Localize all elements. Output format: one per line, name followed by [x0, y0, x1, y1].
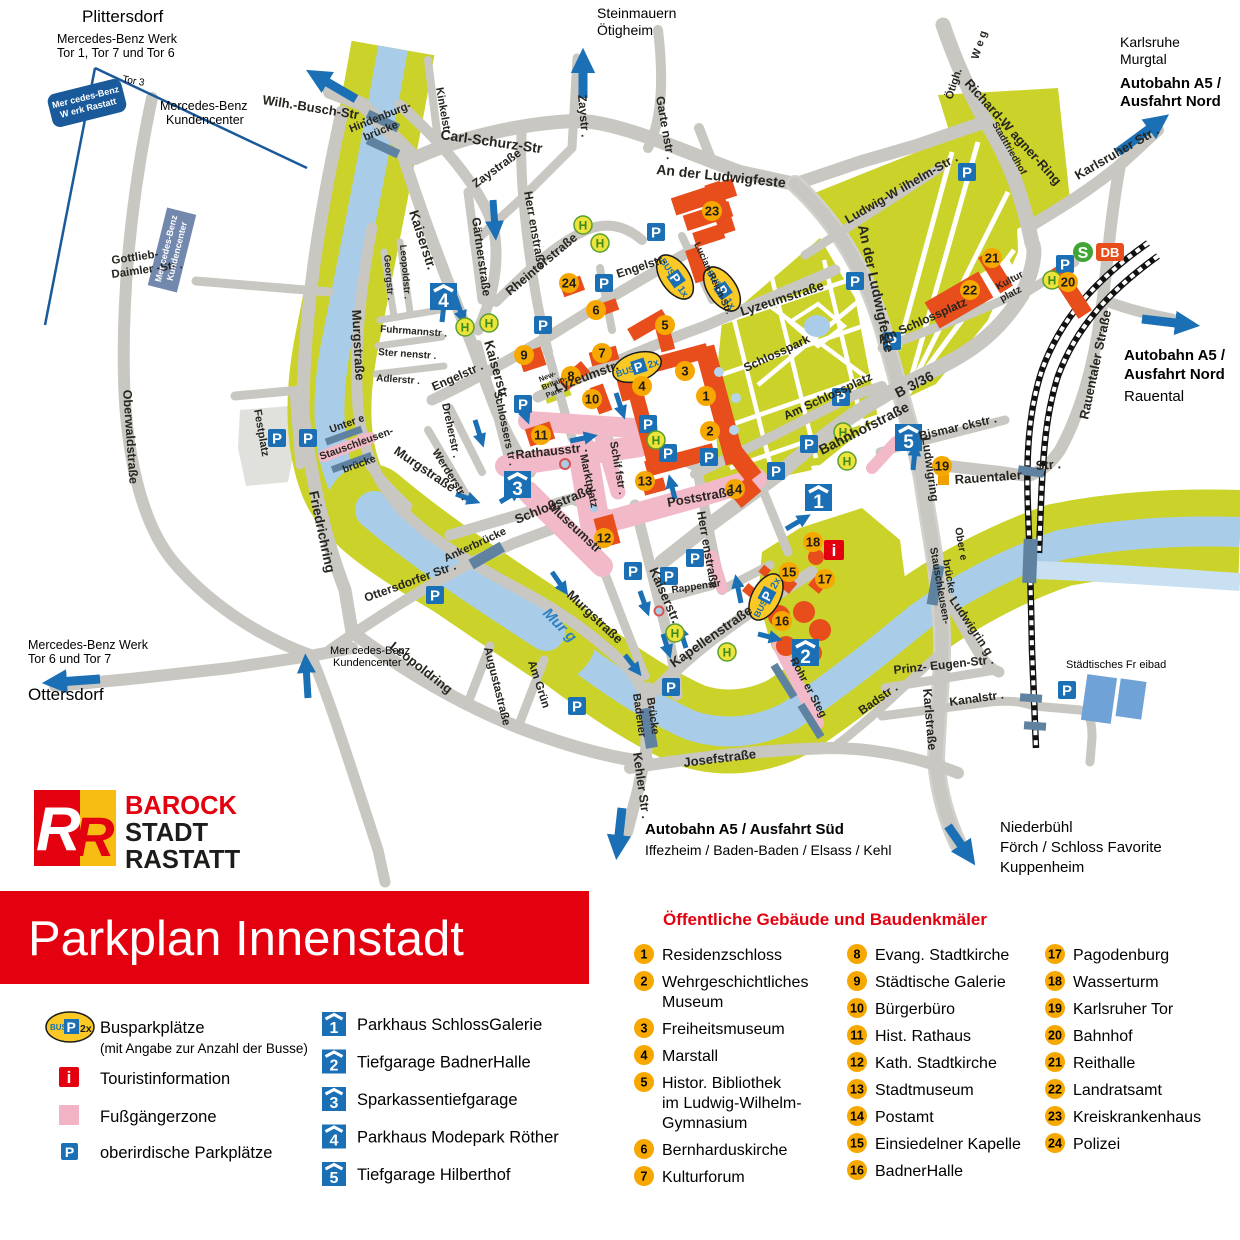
svg-text:Mercedes-Benz Werk: Mercedes-Benz Werk	[57, 32, 178, 46]
svg-text:P: P	[67, 1019, 76, 1035]
svg-text:3: 3	[330, 1095, 339, 1112]
svg-text:H: H	[596, 237, 605, 251]
svg-text:oberirdische Parkplätze: oberirdische Parkplätze	[100, 1144, 272, 1162]
svg-text:2: 2	[706, 424, 713, 439]
svg-text:Kreiskrankenhaus: Kreiskrankenhaus	[1073, 1109, 1201, 1126]
svg-text:6: 6	[641, 1143, 648, 1157]
svg-text:1: 1	[702, 389, 709, 404]
svg-text:H: H	[579, 219, 588, 233]
svg-text:17: 17	[1048, 948, 1062, 962]
svg-text:Ausfahrt Nord: Ausfahrt Nord	[1124, 366, 1225, 383]
svg-text:P: P	[663, 446, 673, 463]
svg-text:STADT: STADT	[125, 819, 209, 847]
svg-text:20: 20	[1048, 1029, 1062, 1043]
svg-text:P: P	[651, 225, 661, 242]
svg-text:22: 22	[1048, 1083, 1062, 1097]
svg-text:18: 18	[1048, 975, 1062, 989]
svg-text:Stadtmuseum: Stadtmuseum	[875, 1082, 974, 1099]
svg-text:BAROCK: BAROCK	[125, 792, 237, 820]
svg-text:23: 23	[1048, 1110, 1062, 1124]
svg-text:P: P	[1062, 683, 1072, 700]
svg-text:Rauental: Rauental	[1124, 388, 1184, 405]
svg-text:P: P	[643, 417, 653, 434]
svg-text:i: i	[67, 1068, 72, 1087]
svg-text:6: 6	[592, 303, 599, 318]
svg-text:Bürgerbüro: Bürgerbüro	[875, 1001, 955, 1018]
svg-text:im Ludwig-Wilhelm-: im Ludwig-Wilhelm-	[662, 1095, 802, 1112]
svg-text:Tiefgarage BadnerHalle: Tiefgarage BadnerHalle	[357, 1054, 531, 1072]
svg-text:Wehrgeschichtliches: Wehrgeschichtliches	[662, 974, 808, 991]
svg-text:23: 23	[705, 204, 719, 219]
svg-text:5: 5	[661, 318, 668, 333]
svg-text:Tiefgarage Hilberthof: Tiefgarage Hilberthof	[357, 1166, 511, 1184]
svg-text:Ottersdorf: Ottersdorf	[28, 685, 104, 704]
svg-text:Städtische Galerie: Städtische Galerie	[875, 974, 1006, 991]
svg-text:20: 20	[1061, 275, 1075, 290]
svg-text:Bahnhof: Bahnhof	[1073, 1028, 1133, 1045]
svg-text:Parkhaus SchlossGalerie: Parkhaus SchlossGalerie	[357, 1016, 542, 1034]
svg-text:Polizei: Polizei	[1073, 1136, 1120, 1153]
svg-text:P: P	[538, 318, 548, 335]
svg-text:Tor 1, Tor 7 und Tor 6: Tor 1, Tor 7 und Tor 6	[57, 46, 175, 60]
svg-text:Ötigheim: Ötigheim	[597, 21, 653, 38]
svg-text:Plittersdorf: Plittersdorf	[82, 7, 164, 26]
svg-text:P: P	[599, 276, 609, 293]
svg-text:7: 7	[641, 1170, 648, 1184]
svg-text:4: 4	[330, 1133, 339, 1150]
svg-text:Autobahn A5 /: Autobahn A5 /	[1124, 347, 1226, 364]
svg-text:5: 5	[641, 1076, 648, 1090]
svg-text:i: i	[832, 541, 837, 560]
svg-text:3: 3	[641, 1022, 648, 1036]
svg-text:Autobahn A5 /: Autobahn A5 /	[1120, 75, 1222, 92]
svg-text:Städtisches Fr eibad: Städtisches Fr eibad	[1066, 659, 1166, 671]
svg-text:Förch / Schloss Favorite: Förch / Schloss Favorite	[1000, 839, 1162, 856]
svg-text:Postamt: Postamt	[875, 1109, 934, 1126]
svg-text:H: H	[1048, 274, 1057, 288]
svg-text:Freiheitsmuseum: Freiheitsmuseum	[662, 1021, 785, 1038]
svg-text:P: P	[572, 699, 582, 716]
svg-text:P: P	[430, 588, 440, 605]
svg-text:P: P	[962, 165, 972, 182]
svg-text:16: 16	[775, 614, 789, 629]
svg-text:Marstall: Marstall	[662, 1048, 718, 1065]
svg-text:13: 13	[850, 1083, 864, 1097]
svg-text:15: 15	[850, 1137, 864, 1151]
svg-text:3: 3	[681, 364, 688, 379]
svg-text:S: S	[1078, 245, 1089, 262]
svg-text:Karlsruhe: Karlsruhe	[1120, 34, 1180, 50]
svg-text:Parkplan Innenstadt: Parkplan Innenstadt	[28, 912, 464, 966]
svg-text:Kath. Stadtkirche: Kath. Stadtkirche	[875, 1055, 997, 1072]
svg-text:14: 14	[850, 1110, 864, 1124]
svg-text:1: 1	[813, 492, 824, 513]
svg-text:H: H	[723, 646, 732, 660]
svg-text:Str .: Str .	[1035, 456, 1061, 473]
svg-text:Hist. Rathaus: Hist. Rathaus	[875, 1028, 971, 1045]
svg-text:P: P	[272, 431, 282, 448]
svg-text:Mercedes-Benz: Mercedes-Benz	[160, 99, 248, 113]
svg-text:BadnerHalle: BadnerHalle	[875, 1163, 963, 1180]
svg-text:Fußgängerzone: Fußgängerzone	[100, 1108, 217, 1126]
svg-text:Museum: Museum	[662, 994, 723, 1011]
svg-text:21: 21	[985, 251, 999, 266]
svg-text:DB: DB	[1101, 245, 1120, 260]
svg-text:Iffezheim / Baden-Baden / Elsa: Iffezheim / Baden-Baden / Elsass / Kehl	[645, 842, 891, 858]
svg-text:4: 4	[641, 1049, 648, 1063]
svg-text:Evang. Stadtkirche: Evang. Stadtkirche	[875, 947, 1009, 964]
svg-text:Murgtal: Murgtal	[1120, 51, 1167, 67]
svg-text:H: H	[843, 455, 852, 469]
svg-text:P: P	[690, 551, 700, 568]
svg-text:24: 24	[562, 276, 577, 291]
svg-text:(mit Angabe zur Anzahl der Bus: (mit Angabe zur Anzahl der Busse)	[100, 1041, 308, 1056]
svg-text:Kulturforum: Kulturforum	[662, 1169, 745, 1186]
svg-text:Autobahn A5 / Ausfahrt Süd: Autobahn A5 / Ausfahrt Süd	[645, 821, 844, 838]
svg-text:19: 19	[1048, 1002, 1062, 1016]
svg-text:9: 9	[520, 348, 527, 363]
svg-text:13: 13	[638, 474, 652, 489]
svg-text:P: P	[1060, 257, 1070, 274]
svg-text:Histor. Bibliothek: Histor. Bibliothek	[662, 1075, 782, 1092]
svg-text:Einsiedelner Kapelle: Einsiedelner Kapelle	[875, 1136, 1021, 1153]
svg-text:15: 15	[782, 565, 796, 580]
svg-text:Steinmauern: Steinmauern	[597, 5, 676, 21]
svg-text:7: 7	[598, 346, 605, 361]
svg-text:3: 3	[512, 479, 523, 500]
svg-text:9: 9	[854, 975, 861, 989]
svg-text:H: H	[485, 317, 494, 331]
svg-text:11: 11	[534, 428, 548, 443]
svg-text:P: P	[704, 450, 714, 467]
svg-text:Pagodenburg: Pagodenburg	[1073, 947, 1169, 964]
svg-text:Residenzschloss: Residenzschloss	[662, 947, 782, 964]
svg-text:Touristinformation: Touristinformation	[100, 1070, 230, 1088]
svg-text:H: H	[671, 627, 680, 641]
svg-text:Parkhaus Modepark Röther: Parkhaus Modepark Röther	[357, 1129, 559, 1147]
svg-text:Gymnasium: Gymnasium	[662, 1115, 747, 1132]
svg-text:5: 5	[903, 432, 914, 453]
svg-text:18: 18	[806, 535, 820, 550]
svg-text:17: 17	[818, 572, 832, 587]
svg-text:Tor 6 und Tor 7: Tor 6 und Tor 7	[28, 652, 111, 666]
svg-text:P: P	[771, 464, 781, 481]
svg-text:Busparkplätze: Busparkplätze	[100, 1019, 205, 1037]
svg-text:21: 21	[1048, 1056, 1062, 1070]
svg-text:8: 8	[854, 948, 861, 962]
svg-text:P: P	[65, 1144, 74, 1160]
svg-text:10: 10	[585, 392, 599, 407]
svg-text:H: H	[461, 321, 470, 335]
svg-text:P: P	[666, 680, 676, 697]
svg-text:Kundencenter: Kundencenter	[166, 113, 244, 127]
svg-text:RASTATT: RASTATT	[125, 846, 241, 874]
svg-text:P: P	[804, 437, 814, 454]
svg-text:Bernharduskirche: Bernharduskirche	[662, 1142, 788, 1159]
svg-text:24: 24	[1048, 1137, 1062, 1151]
svg-text:Ausfahrt Nord: Ausfahrt Nord	[1120, 93, 1221, 110]
svg-text:Wasserturm: Wasserturm	[1073, 974, 1159, 991]
svg-text:P: P	[518, 397, 528, 414]
svg-text:10: 10	[850, 1002, 864, 1016]
svg-text:P: P	[850, 274, 860, 291]
svg-text:4: 4	[438, 291, 449, 312]
svg-text:11: 11	[850, 1029, 863, 1043]
svg-text:4: 4	[638, 379, 646, 394]
svg-text:Karlsruher Tor: Karlsruher Tor	[1073, 1001, 1174, 1018]
svg-text:12: 12	[850, 1056, 864, 1070]
svg-text:2x: 2x	[80, 1023, 92, 1035]
svg-text:1: 1	[330, 1020, 339, 1037]
svg-text:Landratsamt: Landratsamt	[1073, 1082, 1162, 1099]
svg-text:H: H	[652, 434, 661, 448]
svg-text:5: 5	[330, 1170, 339, 1187]
svg-text:Kundencenter: Kundencenter	[333, 657, 402, 669]
svg-text:Mercedes-Benz Werk: Mercedes-Benz Werk	[28, 638, 149, 652]
svg-text:1: 1	[641, 948, 648, 962]
svg-text:R: R	[74, 805, 115, 868]
svg-text:Sparkassentiefgarage: Sparkassentiefgarage	[357, 1091, 518, 1109]
svg-text:P: P	[628, 564, 638, 581]
svg-text:22: 22	[963, 283, 977, 298]
svg-text:2: 2	[641, 975, 648, 989]
svg-text:16: 16	[850, 1164, 864, 1178]
svg-text:Reithalle: Reithalle	[1073, 1055, 1135, 1072]
svg-text:2: 2	[330, 1058, 339, 1075]
svg-text:Öffentliche Gebäude und Bauden: Öffentliche Gebäude und Baudenkmäler	[663, 910, 987, 929]
svg-text:Kuppenheim: Kuppenheim	[1000, 859, 1084, 876]
svg-text:Niederbühl: Niederbühl	[1000, 819, 1073, 836]
svg-text:P: P	[303, 431, 313, 448]
